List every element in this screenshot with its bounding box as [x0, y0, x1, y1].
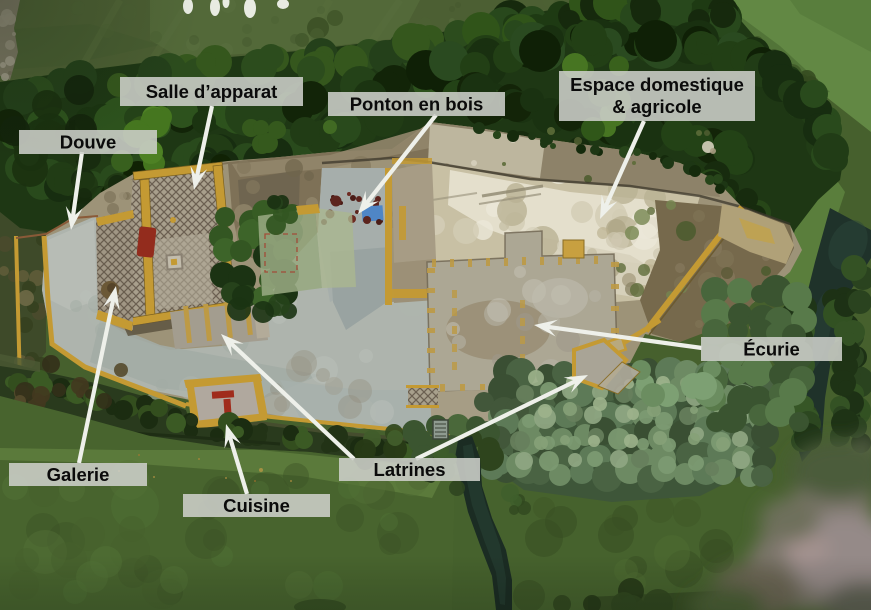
svg-text:Douve: Douve — [60, 132, 117, 153]
svg-text:Espace domestique: Espace domestique — [570, 74, 744, 95]
svg-text:Salle d’apparat: Salle d’apparat — [146, 81, 278, 102]
svg-text:Ponton en bois: Ponton en bois — [350, 94, 484, 115]
svg-text:Latrines: Latrines — [374, 459, 446, 480]
svg-text:Galerie: Galerie — [47, 464, 110, 485]
svg-text:& agricole: & agricole — [612, 96, 701, 117]
svg-text:Cuisine: Cuisine — [223, 495, 290, 516]
svg-text:Écurie: Écurie — [743, 339, 800, 360]
